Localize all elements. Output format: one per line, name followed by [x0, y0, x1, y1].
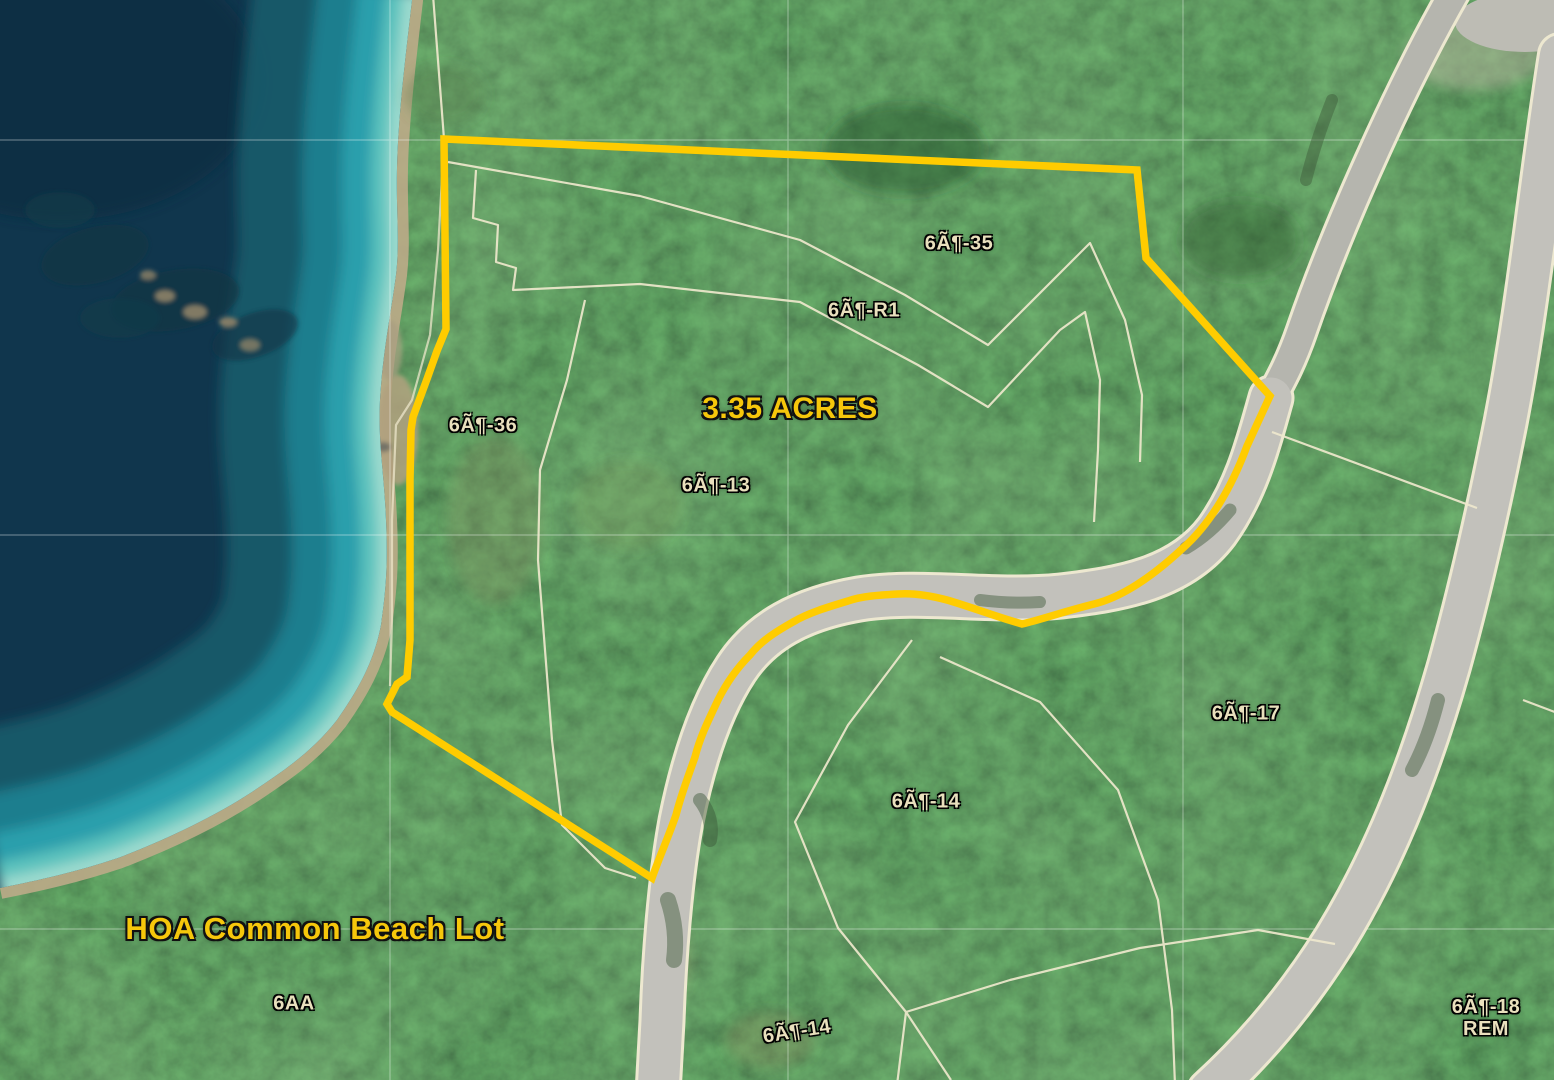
aerial-map: 6Ã¶-35 6Ã¶-R1 6Ã¶-36 6Ã¶-13 6Ã¶-17 6Ã¶-1…	[0, 0, 1554, 1080]
map-canvas	[0, 0, 1554, 1080]
